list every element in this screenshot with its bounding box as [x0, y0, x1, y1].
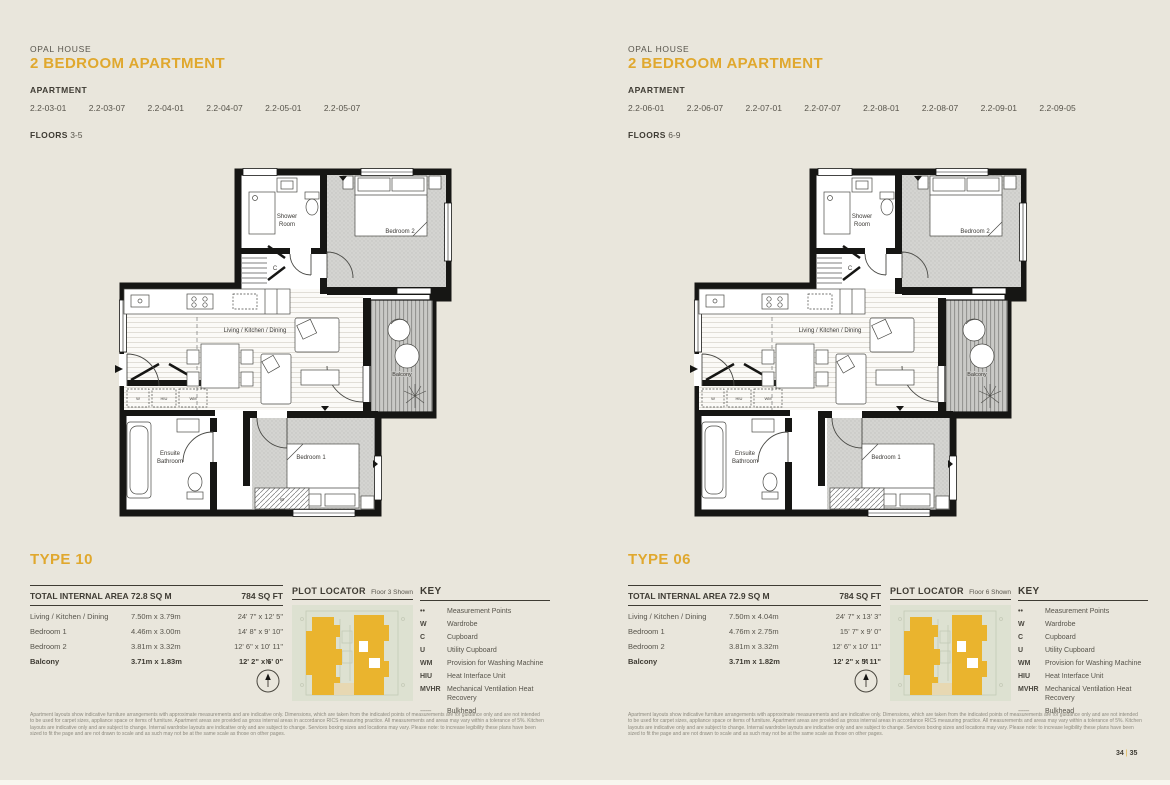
- area-table-header: TOTAL INTERNAL AREA 72.9 SQ M 784 SQ FT: [628, 585, 881, 606]
- plot-locator: PLOT LOCATOR Floor 3 Shown: [292, 586, 413, 701]
- plot-locator-header: PLOT LOCATOR Floor 3 Shown: [292, 586, 413, 600]
- floor-plan: [115, 168, 471, 532]
- building-name: OPAL HOUSE: [30, 44, 91, 54]
- page-edge: [0, 780, 1170, 785]
- area-table: TOTAL INTERNAL AREA 72.8 SQ M 784 SQ FT …: [30, 585, 283, 666]
- apartment-number: 2.2-07-07: [804, 103, 840, 113]
- disclaimer-text: Apartment layouts show indicative furnit…: [30, 712, 544, 738]
- plot-locator-map: [890, 605, 1011, 701]
- key-item: WWardrobe: [420, 621, 550, 630]
- apartment-number: 2.2-08-01: [863, 103, 899, 113]
- header-sqm: 72.9 SQ M: [729, 591, 811, 601]
- key-title: KEY: [1018, 586, 1148, 601]
- page-title: 2 BEDROOM APARTMENT: [30, 55, 225, 72]
- type-title: TYPE 10: [30, 551, 93, 568]
- floors-label: FLOORS: [628, 130, 666, 140]
- key-rows: ••Measurement Points WWardrobe CCupboard…: [1018, 608, 1148, 716]
- north-compass: N: [251, 659, 285, 698]
- building-name: OPAL HOUSE: [628, 44, 689, 54]
- floors-label: FLOORS: [30, 130, 68, 140]
- table-row: Living / Kitchen / Dining 7.50m x 4.04m …: [628, 612, 881, 621]
- apartment-number: 2.2-03-07: [89, 103, 125, 113]
- table-row: Bedroom 1 4.46m x 3.00m 14' 8" x 9' 10": [30, 627, 283, 636]
- plot-locator-floor: Floor 3 Shown: [371, 589, 413, 596]
- page-left: OPAL HOUSE 2 BEDROOM APARTMENT APARTMENT…: [0, 0, 585, 785]
- apartment-number: 2.2-09-01: [981, 103, 1017, 113]
- room-imperial: 12' 6" x 10' 11": [811, 642, 881, 651]
- key-rows: ••Measurement Points WWardrobe CCupboard…: [420, 608, 550, 716]
- plot-locator-title: PLOT LOCATOR: [890, 586, 964, 596]
- room-imperial: 24' 7" x 12' 5": [213, 612, 283, 621]
- apartment-number: 2.2-05-07: [324, 103, 360, 113]
- disclaimer-text: Apartment layouts show indicative furnit…: [628, 712, 1142, 738]
- plot-locator-header: PLOT LOCATOR Floor 6 Shown: [890, 586, 1011, 600]
- area-table-header: TOTAL INTERNAL AREA 72.8 SQ M 784 SQ FT: [30, 585, 283, 606]
- page-number-right: 35: [1130, 750, 1138, 757]
- room-imperial: 15' 7" x 9' 0": [811, 627, 881, 636]
- table-row: Bedroom 1 4.76m x 2.75m 15' 7" x 9' 0": [628, 627, 881, 636]
- floors-value: 6-9: [668, 130, 680, 140]
- apartment-number: 2.2-09-05: [1039, 103, 1075, 113]
- area-table: TOTAL INTERNAL AREA 72.9 SQ M 784 SQ FT …: [628, 585, 881, 666]
- header-sqft: 784 SQ FT: [811, 591, 881, 601]
- room-metric: 7.50m x 3.79m: [131, 612, 213, 621]
- key-item: WMProvision for Washing Machine: [420, 660, 550, 669]
- key-item: MVHRMechanical Ventilation Heat Recovery: [1018, 686, 1148, 703]
- header-total-area: TOTAL INTERNAL AREA: [30, 591, 131, 601]
- table-row: Bedroom 2 3.81m x 3.32m 12' 6" x 10' 11": [30, 642, 283, 651]
- plot-locator-floor: Floor 6 Shown: [969, 589, 1011, 596]
- apartment-number: 2.2-08-07: [922, 103, 958, 113]
- room-name: Living / Kitchen / Dining: [628, 612, 729, 621]
- apartment-label: APARTMENT: [30, 85, 87, 95]
- room-metric: 7.50m x 4.04m: [729, 612, 811, 621]
- key-panel: KEY ••Measurement Points WWardrobe CCupb…: [420, 586, 550, 721]
- plot-locator-map: [292, 605, 413, 701]
- room-imperial: 24' 7" x 13' 3": [811, 612, 881, 621]
- plot-locator-title: PLOT LOCATOR: [292, 586, 366, 596]
- north-label: N: [849, 659, 883, 666]
- floors-value: 3-5: [70, 130, 82, 140]
- plot-locator: PLOT LOCATOR Floor 6 Shown: [890, 586, 1011, 701]
- key-item: WMProvision for Washing Machine: [1018, 660, 1148, 669]
- header-total-area: TOTAL INTERNAL AREA: [628, 591, 729, 601]
- compass-icon: [255, 667, 281, 693]
- apartment-number: 2.2-07-01: [746, 103, 782, 113]
- key-item: UUtility Cupboard: [420, 647, 550, 656]
- table-row: Living / Kitchen / Dining 7.50m x 3.79m …: [30, 612, 283, 621]
- room-imperial: 12' 6" x 10' 11": [213, 642, 283, 651]
- key-title: KEY: [420, 586, 550, 601]
- table-row-balcony: Balcony 3.71m x 1.83m 12' 2" x 6' 0": [30, 657, 283, 666]
- room-imperial: 14' 8" x 9' 10": [213, 627, 283, 636]
- key-item: CCupboard: [420, 634, 550, 643]
- page-number-separator: |: [1126, 750, 1128, 757]
- north-compass: N: [849, 659, 883, 698]
- room-metric: 3.81m x 3.32m: [131, 642, 213, 651]
- room-name: Living / Kitchen / Dining: [30, 612, 131, 621]
- north-label: N: [251, 659, 285, 666]
- apartment-number: 2.2-03-01: [30, 103, 66, 113]
- key-item: HIUHeat Interface Unit: [420, 673, 550, 682]
- apartment-numbers: 2.2-06-01 2.2-06-07 2.2-07-01 2.2-07-07 …: [628, 103, 1096, 113]
- floors-line: FLOORS 3-5: [30, 130, 83, 140]
- apartment-number: 2.2-04-07: [206, 103, 242, 113]
- room-metric: 3.71m x 1.82m: [729, 657, 811, 666]
- page-right: OPAL HOUSE 2 BEDROOM APARTMENT APARTMENT…: [598, 0, 1170, 785]
- brochure-spread: OPAL HOUSE 2 BEDROOM APARTMENT APARTMENT…: [0, 0, 1170, 785]
- key-panel: KEY ••Measurement Points WWardrobe CCupb…: [1018, 586, 1148, 721]
- compass-icon: [853, 667, 879, 693]
- table-row: Bedroom 2 3.81m x 3.32m 12' 6" x 10' 11": [628, 642, 881, 651]
- page-number: 34|35: [1116, 750, 1137, 757]
- room-name: Bedroom 1: [628, 627, 729, 636]
- key-item: ••Measurement Points: [420, 608, 550, 617]
- apartment-number: 2.2-06-07: [687, 103, 723, 113]
- room-name: Bedroom 1: [30, 627, 131, 636]
- room-name: Balcony: [30, 657, 131, 666]
- key-item: UUtility Cupboard: [1018, 647, 1148, 656]
- floors-line: FLOORS 6-9: [628, 130, 681, 140]
- apartment-number: 2.2-05-01: [265, 103, 301, 113]
- room-metric: 3.81m x 3.32m: [729, 642, 811, 651]
- apartment-label: APARTMENT: [628, 85, 685, 95]
- apartment-number: 2.2-04-01: [148, 103, 184, 113]
- apartment-number: 2.2-06-01: [628, 103, 664, 113]
- room-metric: 3.71m x 1.83m: [131, 657, 213, 666]
- room-name: Bedroom 2: [628, 642, 729, 651]
- header-sqm: 72.8 SQ M: [131, 591, 213, 601]
- measurement-points-symbol: ••: [420, 608, 447, 617]
- key-item: ••Measurement Points: [1018, 608, 1148, 617]
- measurement-points-symbol: ••: [1018, 608, 1045, 617]
- key-item: MVHRMechanical Ventilation Heat Recovery: [420, 686, 550, 703]
- type-title: TYPE 06: [628, 551, 691, 568]
- page-number-left: 34: [1116, 750, 1124, 757]
- room-name: Bedroom 2: [30, 642, 131, 651]
- room-name: Balcony: [628, 657, 729, 666]
- key-item: WWardrobe: [1018, 621, 1148, 630]
- key-item: HIUHeat Interface Unit: [1018, 673, 1148, 682]
- page-title: 2 BEDROOM APARTMENT: [628, 55, 823, 72]
- header-sqft: 784 SQ FT: [213, 591, 283, 601]
- key-item: CCupboard: [1018, 634, 1148, 643]
- room-metric: 4.76m x 2.75m: [729, 627, 811, 636]
- room-metric: 4.46m x 3.00m: [131, 627, 213, 636]
- floor-plan: [690, 168, 1046, 532]
- table-row-balcony: Balcony 3.71m x 1.82m 12' 2" x 5' 11": [628, 657, 881, 666]
- apartment-numbers: 2.2-03-01 2.2-03-07 2.2-04-01 2.2-04-07 …: [30, 103, 380, 113]
